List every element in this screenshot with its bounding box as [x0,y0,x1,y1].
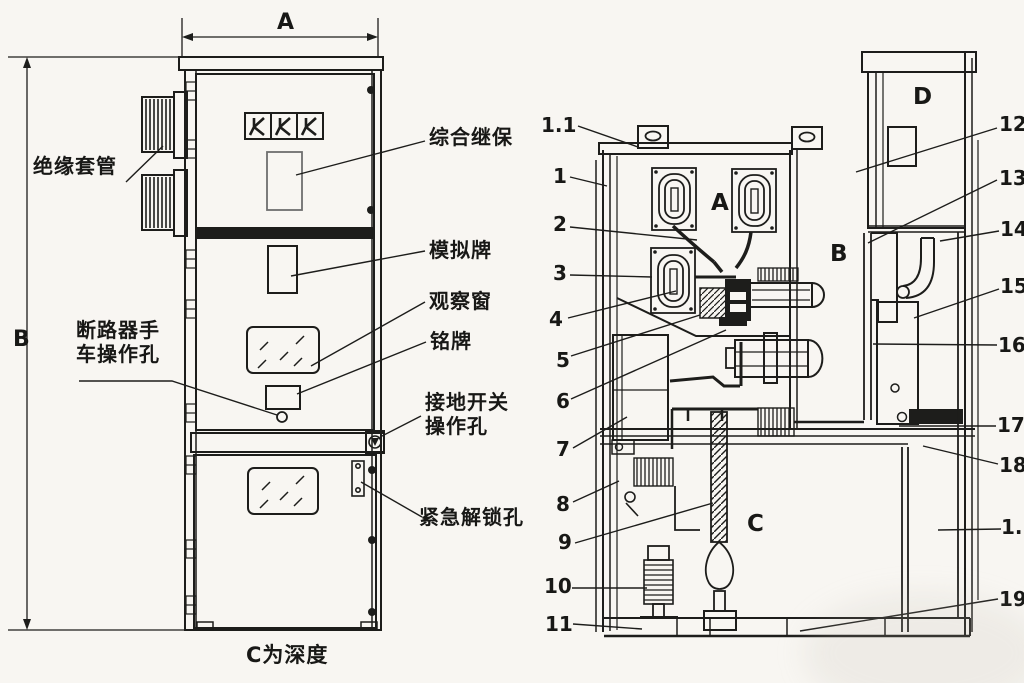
callout-integrated-relay: 综合继保 [429,127,513,148]
callout-observation-window: 观察窗 [429,291,492,312]
lifting-lugs [638,126,822,149]
mimic-board-rect [268,246,297,293]
compartment-letter-c: C [747,513,764,537]
callout-breaker-hole-line2: 车操作孔 [76,344,160,365]
emergency-unlock-plate [352,461,364,496]
side-callout-14: 14 [1000,219,1024,240]
compartment-b-internals [864,233,934,424]
side-callout-15: 15 [1000,276,1024,297]
dim-height-label: B [13,329,30,352]
observation-window-lower [248,468,318,514]
insulation-bushings [142,92,187,236]
side-callout-9: 9 [558,532,572,553]
top-door [196,74,374,228]
compartment-letter-a: A [711,192,729,216]
switchgear-diagram: A B C为深度 绝缘套管 断路器手 车操作孔 综合继保 模拟牌 观察窗 铭牌 … [0,0,1024,683]
lv-compartment-d [862,52,976,232]
side-callout-5: 5 [556,350,570,371]
side-callout-8: 8 [556,494,570,515]
side-callout-2: 2 [553,214,567,235]
compartment-letter-b: B [830,243,848,267]
busbars [670,342,864,449]
depth-note: C为深度 [246,645,328,667]
side-view-drawing [568,52,1001,636]
divider-strip [191,433,384,452]
side-callout-17: 17 [997,415,1024,436]
callout-insulation-bushing: 绝缘套管 [33,156,117,177]
side-callout-10: 10 [544,576,572,597]
side-callout-6: 6 [556,391,570,412]
side-callout-4: 4 [549,309,563,330]
lower-door [194,455,376,628]
door-divider-band [196,228,374,237]
front-view-drawing [8,18,426,630]
side-callout-1-1: 1.1 [541,115,576,136]
middle-door [196,238,374,430]
side-callout-18: 18 [999,455,1024,476]
observation-window-middle [247,327,319,373]
callout-nameplate: 铭牌 [430,331,472,352]
side-callout-3: 3 [553,263,567,284]
phase-indicator-boxes [245,113,323,139]
relay-window [267,152,302,210]
callout-mimic-board: 模拟牌 [429,240,492,261]
handcart-operation-hole [277,412,287,422]
callout-earthing-hole-line2: 操作孔 [425,416,488,437]
side-callout-11: 11 [545,614,573,635]
side-callout-13: 13 [999,168,1024,189]
dim-width-label: A [277,12,294,35]
side-callout-7: 7 [556,439,570,460]
conductors [673,226,751,277]
compartment-letter-d: D [913,86,932,110]
side-callout-12: 12 [999,114,1024,135]
callout-earthing-hole-line1: 接地开关 [425,392,509,413]
side-leaders [568,126,1001,631]
side-callout-1-2: 1.2 [1001,517,1024,538]
callout-emergency-unlock: 紧急解锁孔 [419,507,524,528]
nameplate-rect [266,386,300,409]
compartment-divider [600,410,975,454]
mechanism-box [613,335,668,440]
callout-breaker-hole-line1: 断路器手 [76,320,160,341]
side-callout-19: 19 [999,589,1024,610]
side-callout-1: 1 [553,166,567,187]
side-callout-16: 16 [998,335,1024,356]
